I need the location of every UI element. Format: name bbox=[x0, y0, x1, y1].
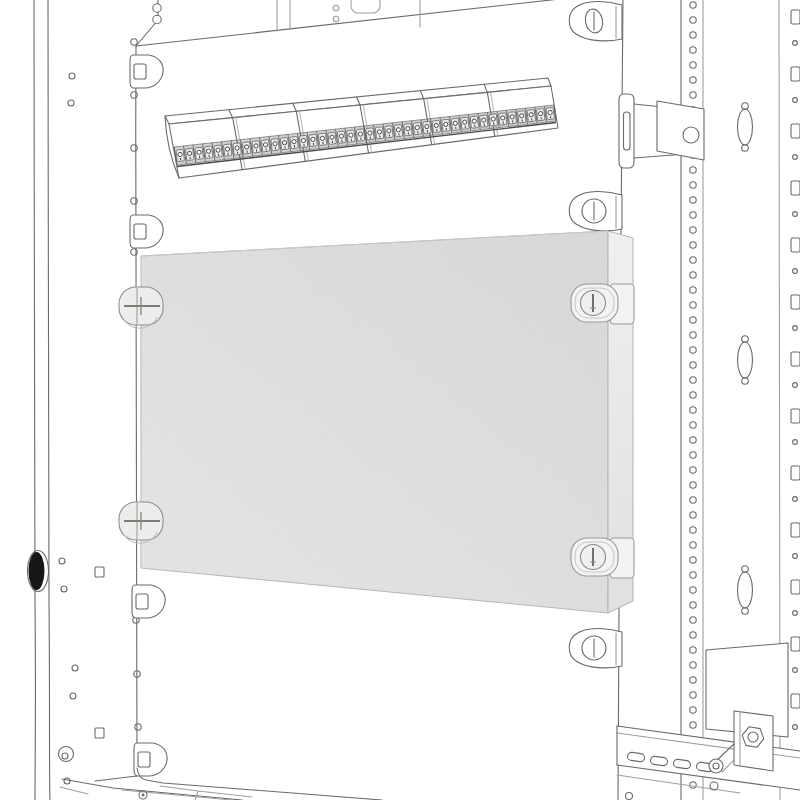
frame-left-edge bbox=[136, 46, 137, 770]
upright-hole bbox=[690, 2, 696, 8]
terminal-clamp bbox=[537, 108, 545, 120]
terminal-screw bbox=[538, 111, 543, 116]
upright-hole bbox=[690, 392, 696, 398]
terminal-clamp bbox=[242, 142, 250, 154]
clamp-fastener-top bbox=[571, 284, 634, 324]
terminal-screw bbox=[453, 121, 458, 126]
terminal-screw bbox=[415, 125, 420, 130]
outer-rail-hole bbox=[793, 725, 798, 730]
fixing-tab bbox=[569, 191, 622, 230]
terminal-clamp bbox=[176, 149, 184, 161]
terminal-screw bbox=[519, 113, 524, 118]
rear-hole-a bbox=[333, 5, 339, 11]
upright-hole bbox=[690, 77, 696, 83]
terminal-clamp bbox=[470, 116, 478, 128]
upright-keyholes bbox=[738, 103, 753, 615]
terminal-clamp bbox=[252, 141, 260, 153]
upright-hole bbox=[690, 17, 696, 23]
upright-hole bbox=[690, 167, 696, 173]
terminal-screw bbox=[339, 134, 344, 139]
rail-screw-washer bbox=[709, 759, 723, 773]
upright-hole bbox=[690, 497, 696, 503]
bottom-member-screw-center bbox=[142, 794, 145, 797]
enclosure-drawing: Electrical enclosure technical illustrat… bbox=[0, 0, 800, 800]
din-rail-assembly bbox=[617, 643, 800, 800]
outer-rail-hole bbox=[793, 41, 798, 46]
terminal-screw bbox=[292, 139, 297, 144]
upright-hole bbox=[690, 587, 696, 593]
keyhole-bottom-hole bbox=[742, 608, 749, 615]
terminal-clamp bbox=[423, 121, 431, 133]
outer-rail-hole bbox=[793, 98, 798, 103]
upright-hole bbox=[690, 257, 696, 263]
upright-hole bbox=[690, 362, 696, 368]
terminal-clamp bbox=[328, 132, 336, 144]
terminal-screw bbox=[282, 140, 287, 145]
upright-hole bbox=[690, 632, 696, 638]
terminal-clamp bbox=[489, 114, 497, 126]
terminal-screw bbox=[406, 126, 411, 131]
quarter-turn-knob-top bbox=[119, 287, 163, 328]
cable-knockout-hole bbox=[29, 552, 45, 590]
upright-hole bbox=[690, 482, 696, 488]
outer-rail-slot bbox=[791, 181, 800, 195]
terminal-clamp bbox=[385, 126, 393, 138]
terminal-clamp bbox=[394, 125, 402, 137]
terminal-clamp bbox=[432, 120, 440, 132]
keyhole-top-hole bbox=[742, 566, 749, 573]
outer-rail-slot bbox=[791, 238, 800, 252]
terminal-screw bbox=[358, 132, 363, 137]
terminal-screw bbox=[254, 144, 259, 149]
corner-cutout-bottom bbox=[153, 15, 161, 23]
outer-rail-slot bbox=[791, 10, 800, 24]
terminal-strip bbox=[165, 78, 558, 178]
wall-grommet-center bbox=[62, 753, 68, 759]
upright-hole bbox=[690, 347, 696, 353]
upright-hole bbox=[690, 242, 696, 248]
outer-rail-slot bbox=[791, 409, 800, 423]
upright-hole bbox=[690, 302, 696, 308]
terminal-clamp bbox=[413, 122, 421, 134]
quarter-turn-knob-bottom bbox=[119, 502, 163, 543]
bottom-member-rail-b bbox=[60, 787, 88, 794]
outer-rail-hole bbox=[793, 497, 798, 502]
terminal-screw bbox=[273, 141, 278, 146]
terminal-screw bbox=[206, 149, 211, 154]
terminal-clamp bbox=[195, 147, 203, 159]
upright-hole bbox=[690, 557, 696, 563]
panel-support-clip bbox=[130, 55, 163, 88]
panel-support-clip bbox=[130, 215, 163, 248]
outer-upright-slots bbox=[791, 10, 800, 786]
left-wall-outer-edge bbox=[34, 0, 35, 800]
upright-hole bbox=[690, 707, 696, 713]
terminal-clamp bbox=[204, 146, 212, 158]
upright-hole bbox=[690, 722, 696, 728]
terminal-clamp bbox=[527, 110, 535, 122]
wall-hole bbox=[59, 558, 65, 564]
terminal-screw bbox=[434, 123, 439, 128]
terminal-screw bbox=[244, 145, 249, 150]
outer-rail-hole bbox=[793, 269, 798, 274]
terminal-screw bbox=[368, 131, 373, 136]
keyhole-slot bbox=[738, 572, 753, 608]
wall-hole bbox=[72, 665, 78, 671]
terminal-screw bbox=[481, 118, 486, 123]
terminal-clamp bbox=[186, 148, 194, 160]
upright-hole bbox=[690, 422, 696, 428]
terminal-clamp bbox=[404, 123, 412, 135]
terminal-screw bbox=[178, 152, 183, 157]
outer-rail-hole bbox=[793, 155, 798, 160]
terminal-screw bbox=[529, 112, 534, 117]
wall-hole bbox=[64, 778, 70, 784]
terminal-screw bbox=[396, 127, 401, 132]
terminal-clamp bbox=[508, 112, 516, 124]
terminal-clamp bbox=[280, 137, 288, 149]
upright-hole bbox=[690, 332, 696, 338]
upright-hole bbox=[690, 287, 696, 293]
frame-edge-hole bbox=[131, 39, 137, 45]
upright-hole bbox=[690, 407, 696, 413]
terminal-clamp bbox=[461, 117, 469, 129]
clamp-fastener-bottom bbox=[571, 538, 634, 578]
terminal-clamp bbox=[451, 118, 459, 130]
outer-rail-slot bbox=[791, 67, 800, 81]
terminal-screw bbox=[500, 116, 505, 121]
cabinet-left-wall bbox=[28, 0, 105, 800]
upright-hole bbox=[690, 527, 696, 533]
terminal-clamp bbox=[375, 127, 383, 139]
terminal-screw bbox=[311, 137, 316, 142]
terminal-clamp bbox=[518, 111, 526, 123]
outer-rail-hole bbox=[793, 326, 798, 331]
terminal-screw bbox=[197, 150, 202, 155]
wall-hole bbox=[69, 73, 75, 79]
upright-hole bbox=[690, 467, 696, 473]
wall-hole bbox=[68, 100, 74, 106]
terminal-screw bbox=[187, 151, 192, 156]
terminal-screw bbox=[387, 128, 392, 133]
keyhole-slot bbox=[738, 342, 753, 378]
keyhole-top-hole bbox=[742, 103, 749, 110]
upright-hole bbox=[690, 32, 696, 38]
terminal-screw bbox=[320, 136, 325, 141]
plate-hole-b bbox=[626, 793, 633, 800]
upright-hole bbox=[690, 572, 696, 578]
bracket-frame-plate bbox=[619, 94, 634, 168]
terminal-clamp bbox=[499, 113, 507, 125]
outer-rail-slot bbox=[791, 124, 800, 138]
terminal-clamp bbox=[261, 140, 269, 152]
frame-bottom-member bbox=[60, 768, 382, 800]
keyhole-top-hole bbox=[742, 336, 749, 343]
terminal-screw bbox=[510, 115, 515, 120]
outer-rail-hole bbox=[793, 611, 798, 616]
terminal-clamp bbox=[214, 145, 222, 157]
upright-hole bbox=[690, 677, 696, 683]
wall-hole bbox=[70, 693, 76, 699]
terminal-screw bbox=[548, 110, 553, 115]
terminal-screw bbox=[330, 135, 335, 140]
terminal-screw bbox=[424, 124, 429, 129]
outer-rail-slot bbox=[791, 466, 800, 480]
upright-hole bbox=[690, 662, 696, 668]
terminal-clamp bbox=[347, 130, 355, 142]
terminal-clamp bbox=[233, 143, 241, 155]
terminal-screw bbox=[301, 138, 306, 143]
terminal-clamp bbox=[271, 139, 279, 151]
outer-rail-hole bbox=[793, 554, 798, 559]
terminal-clamp bbox=[309, 134, 317, 146]
upright-hole bbox=[690, 782, 696, 788]
terminal-screw bbox=[263, 142, 268, 147]
fixing-tab bbox=[569, 1, 622, 40]
blind-panel bbox=[119, 231, 634, 613]
terminal-clamp bbox=[480, 115, 488, 127]
terminal-clamp bbox=[290, 136, 298, 148]
top-bracket bbox=[619, 94, 704, 168]
terminal-clamp bbox=[442, 119, 450, 131]
outer-rail-hole bbox=[793, 212, 798, 217]
terminal-screw bbox=[491, 117, 496, 122]
upright-hole bbox=[690, 197, 696, 203]
terminal-clamp bbox=[546, 107, 554, 119]
keyhole-slot bbox=[738, 109, 753, 145]
left-wall-holes bbox=[59, 73, 105, 784]
terminal-screw bbox=[377, 130, 382, 135]
upright-hole bbox=[690, 647, 696, 653]
rear-duct-end bbox=[351, 0, 380, 13]
panel-support-clip bbox=[134, 743, 167, 776]
outer-rail-slot bbox=[791, 637, 800, 651]
keyhole-bottom-hole bbox=[742, 378, 749, 385]
corner-cutout-top bbox=[153, 4, 161, 12]
fixing-tab bbox=[569, 628, 622, 667]
panel-support-clip bbox=[132, 585, 165, 618]
upright-hole bbox=[690, 62, 696, 68]
illustration-canvas: Electrical enclosure technical illustrat… bbox=[0, 0, 800, 800]
outer-rail-hole bbox=[793, 440, 798, 445]
terminal-clamp bbox=[223, 144, 231, 156]
terminal-screw bbox=[225, 147, 230, 152]
upright-hole bbox=[690, 377, 696, 383]
outer-rail-slot bbox=[791, 523, 800, 537]
outer-rail-hole bbox=[793, 668, 798, 673]
terminal-screw bbox=[462, 120, 467, 125]
upright-hole bbox=[690, 272, 696, 278]
upright-hole bbox=[690, 602, 696, 608]
upright-hole bbox=[690, 227, 696, 233]
upright-hole bbox=[690, 452, 696, 458]
upright-hole bbox=[690, 692, 696, 698]
terminal-clamp bbox=[337, 131, 345, 143]
upright-hole bbox=[690, 47, 696, 53]
blind-panel-grain bbox=[141, 231, 608, 613]
bottom-member-ledge bbox=[95, 776, 137, 781]
terminal-clamp bbox=[356, 129, 364, 141]
terminal-screw bbox=[472, 119, 477, 124]
frame-edge-hole bbox=[135, 724, 141, 730]
upright-hole bbox=[690, 617, 696, 623]
bottom-member-rail-a bbox=[62, 779, 242, 800]
upright-hole bbox=[690, 212, 696, 218]
left-wall-inner-edge bbox=[48, 0, 50, 800]
keyhole-bottom-hole bbox=[742, 145, 749, 152]
upright-hole bbox=[690, 182, 696, 188]
terminal-clamp bbox=[318, 133, 326, 145]
outer-rail-slot bbox=[791, 580, 800, 594]
upright-hole bbox=[690, 92, 696, 98]
upright-hole bbox=[690, 317, 696, 323]
outer-rail-slot bbox=[791, 352, 800, 366]
wall-square-hole bbox=[95, 728, 104, 738]
wall-hole bbox=[61, 586, 67, 592]
terminal-screw bbox=[216, 148, 221, 153]
outer-rail-slot bbox=[791, 694, 800, 708]
upright-hole bbox=[690, 437, 696, 443]
wall-square-hole bbox=[95, 567, 104, 577]
terminal-screw bbox=[349, 133, 354, 138]
outer-rail-hole bbox=[793, 383, 798, 388]
rear-hole-b bbox=[333, 16, 339, 22]
outer-rail-slot bbox=[791, 295, 800, 309]
terminal-clamp bbox=[366, 128, 374, 140]
upright-hole bbox=[690, 512, 696, 518]
terminal-screw bbox=[235, 146, 240, 151]
terminal-screw bbox=[443, 122, 448, 127]
terminal-clamp bbox=[299, 135, 307, 147]
upright-hole bbox=[690, 542, 696, 548]
